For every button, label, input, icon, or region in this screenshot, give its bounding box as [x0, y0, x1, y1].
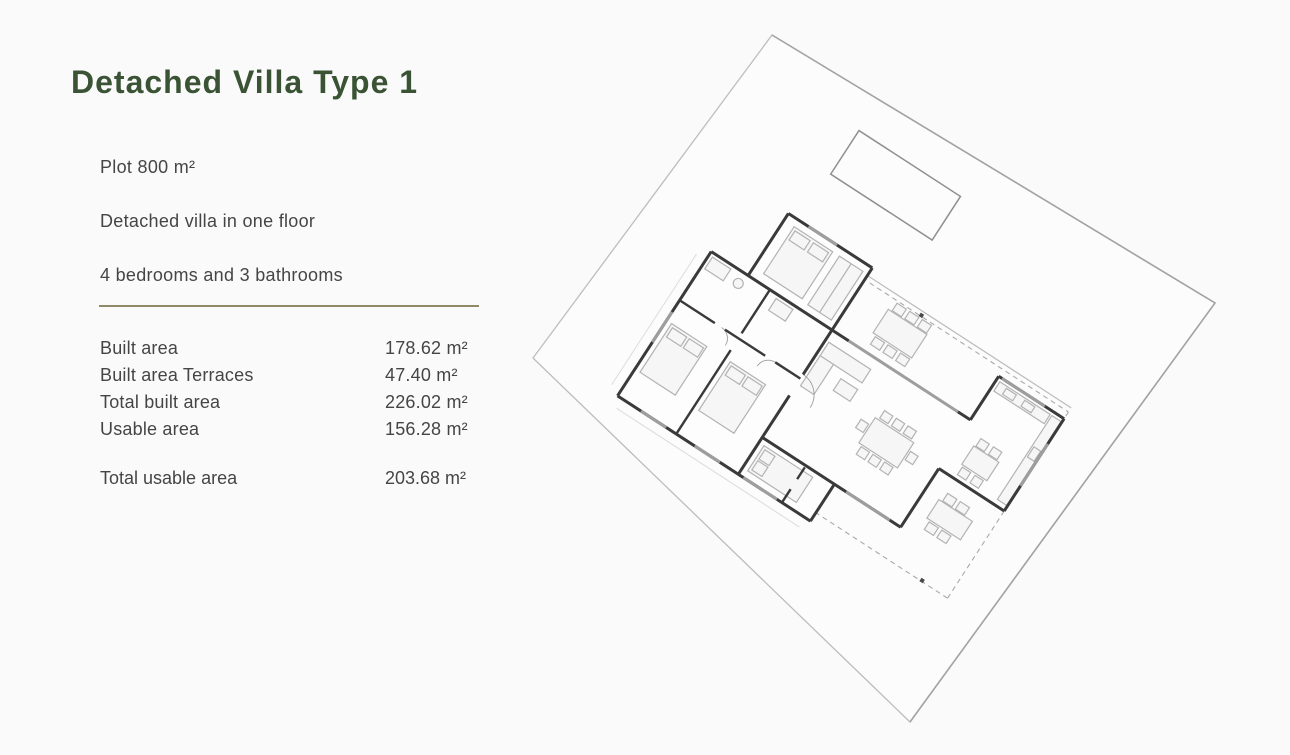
brochure-page: Detached Villa Type 1 Plot 800 m² Detach…	[0, 0, 1290, 755]
site-plan	[0, 0, 1290, 755]
